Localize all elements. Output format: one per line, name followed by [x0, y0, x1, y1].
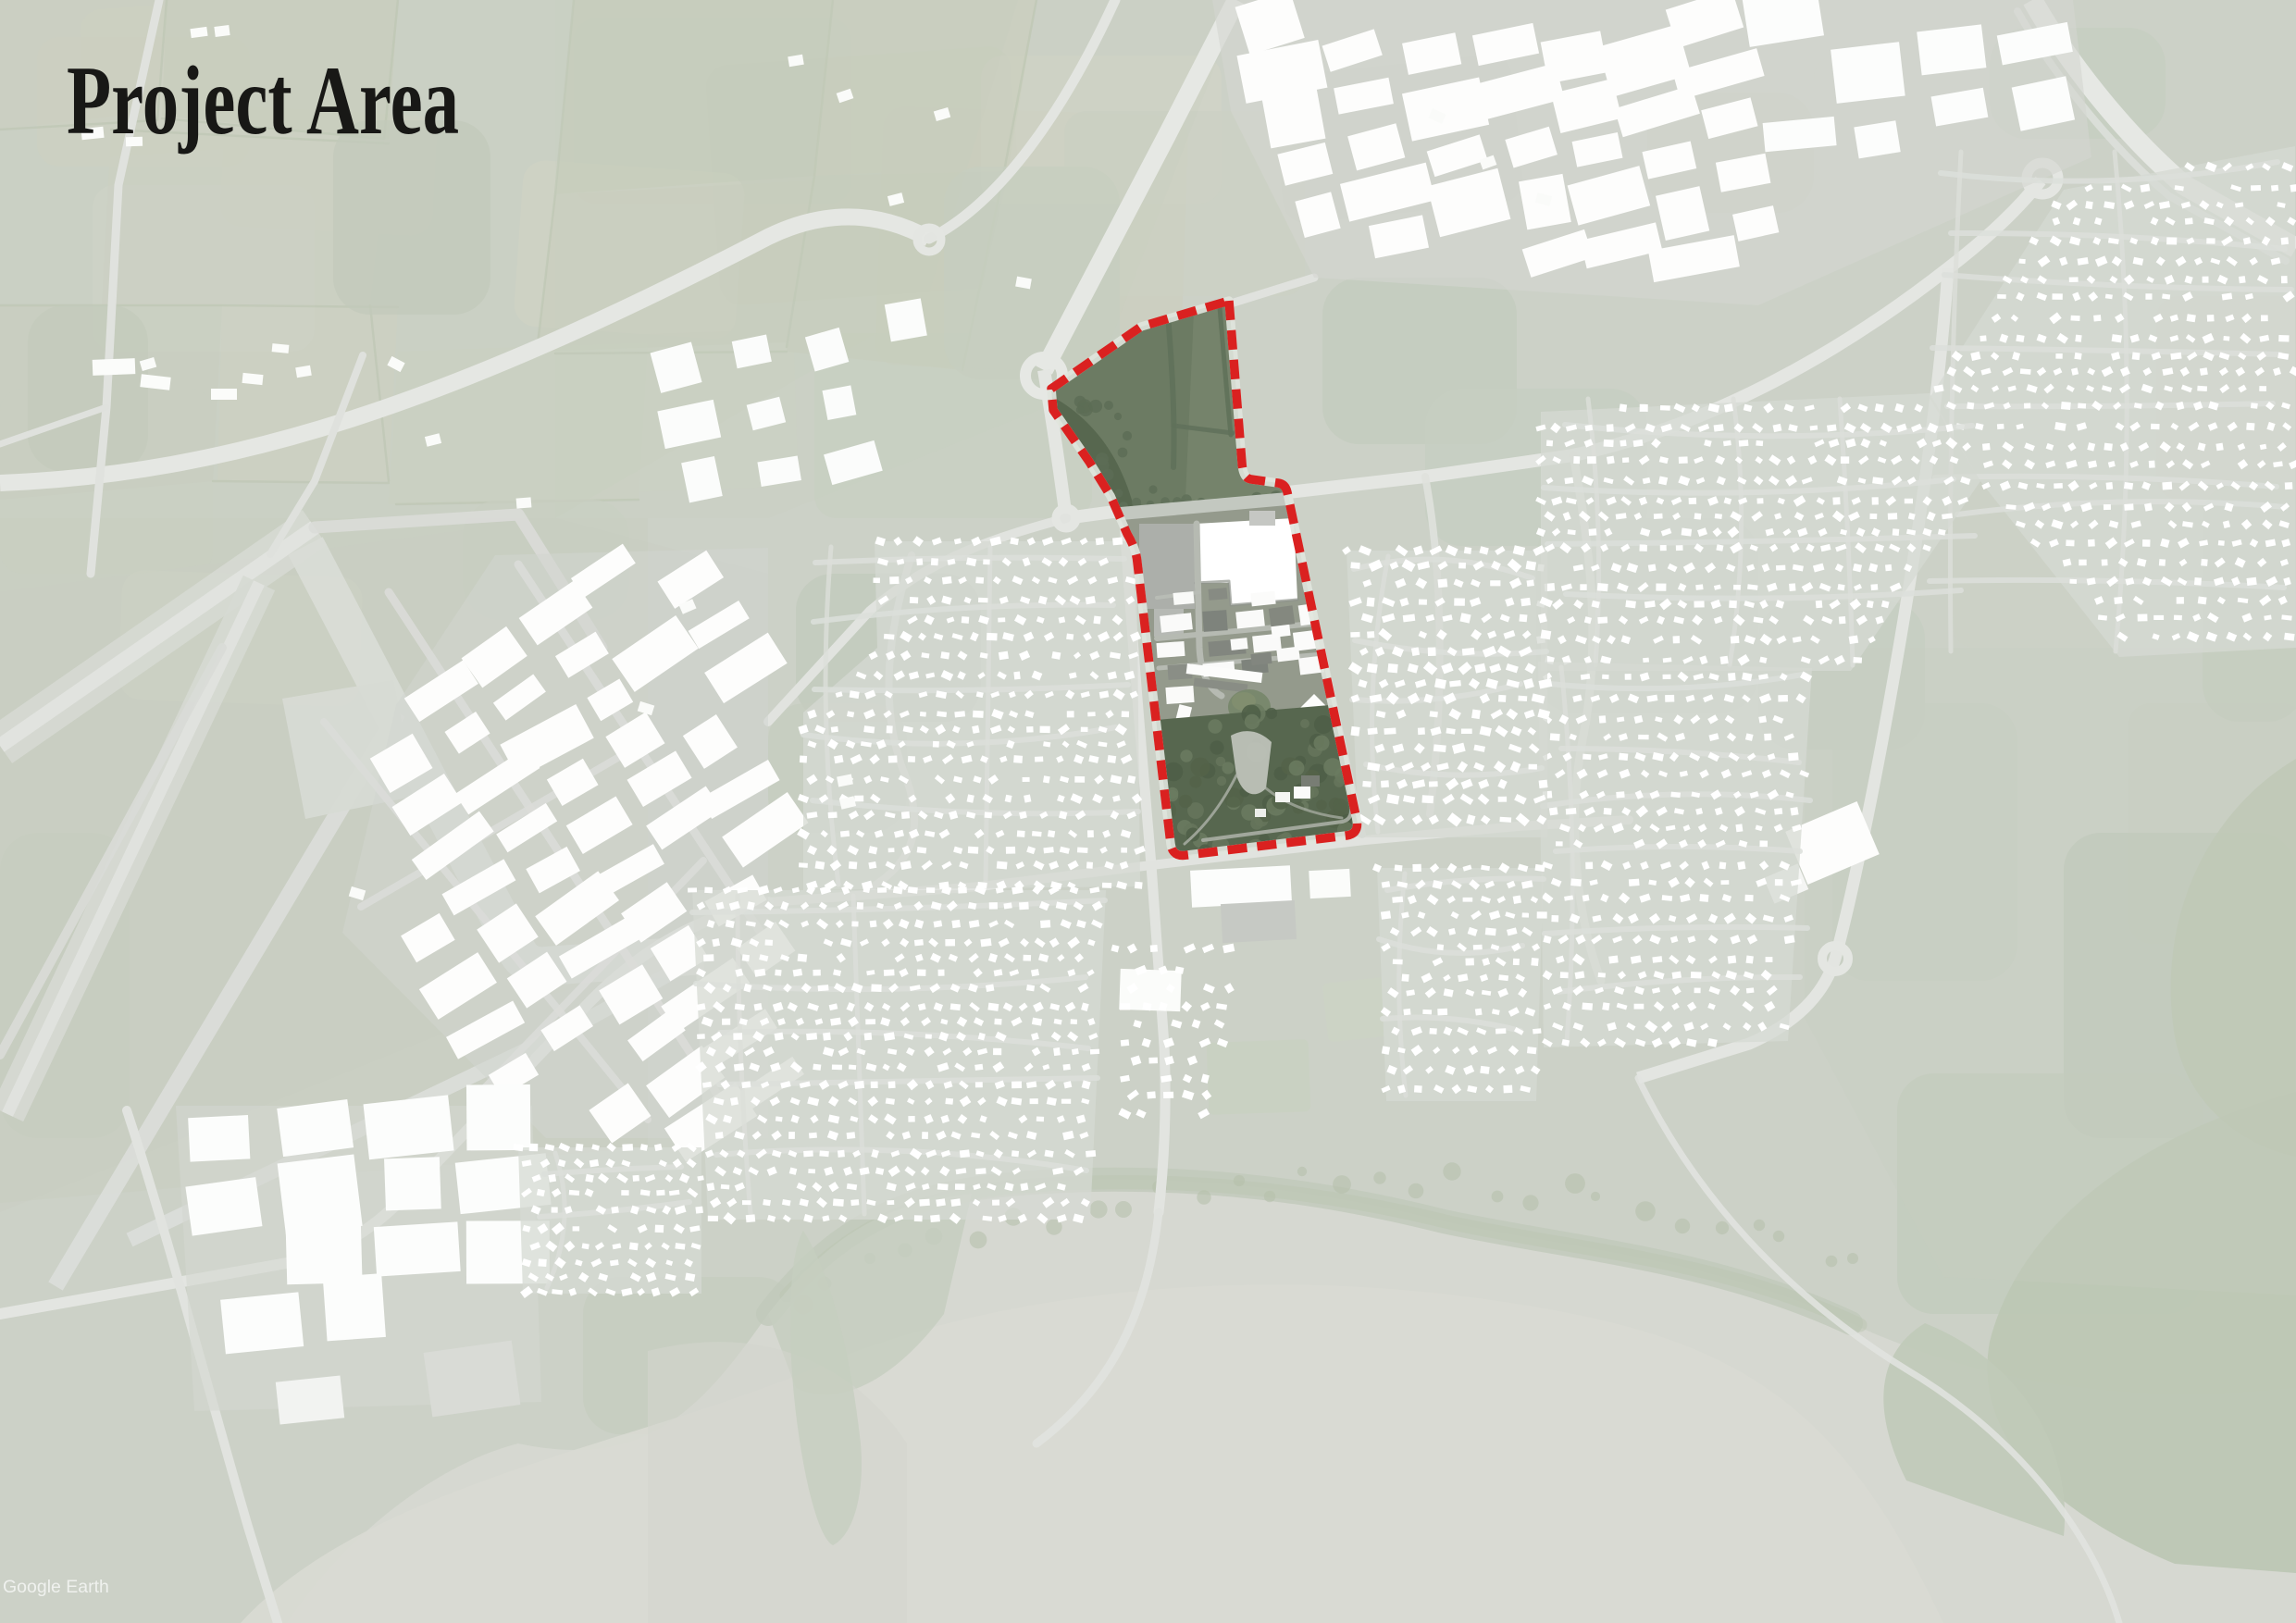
svg-text:Google Earth: Google Earth [3, 1577, 109, 1597]
svg-text:Project Area: Project Area [67, 46, 459, 155]
